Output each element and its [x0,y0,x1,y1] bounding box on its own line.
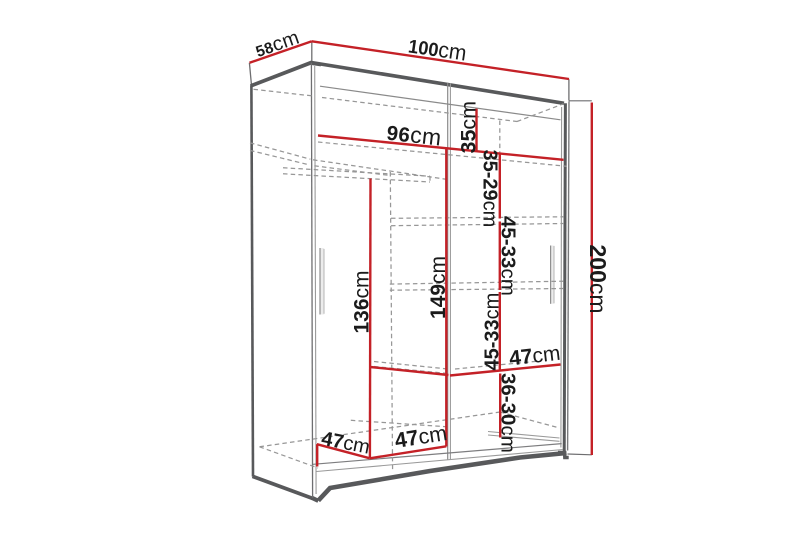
svg-text:45-33cm: 45-33cm [482,293,504,371]
svg-text:149cm: 149cm [427,256,450,319]
svg-text:136cm: 136cm [351,270,374,333]
svg-text:35cm: 35cm [457,101,481,154]
svg-text:36-30cm: 36-30cm [497,373,520,453]
svg-text:200cm: 200cm [585,245,611,314]
svg-text:45-33cm: 45-33cm [497,216,520,296]
